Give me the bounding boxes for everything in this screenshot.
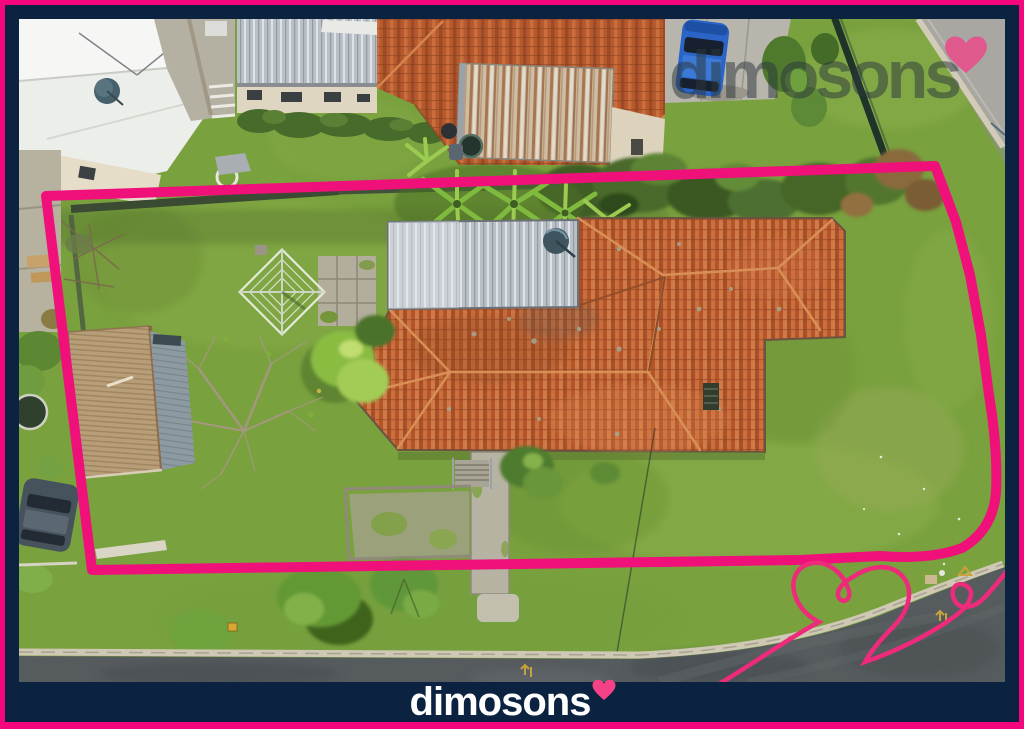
aerial-photo: dimosons <box>19 19 1005 682</box>
watermark-heart-icon <box>944 35 988 75</box>
navy-frame: dimosons dimosons <box>5 5 1019 722</box>
logo-text: dimosons <box>410 682 591 722</box>
logo-heart-icon <box>592 679 616 701</box>
footer-banner: dimosons <box>19 682 1005 722</box>
watermark-text: dimosons <box>669 41 958 109</box>
grey-metal-roof <box>388 220 578 309</box>
